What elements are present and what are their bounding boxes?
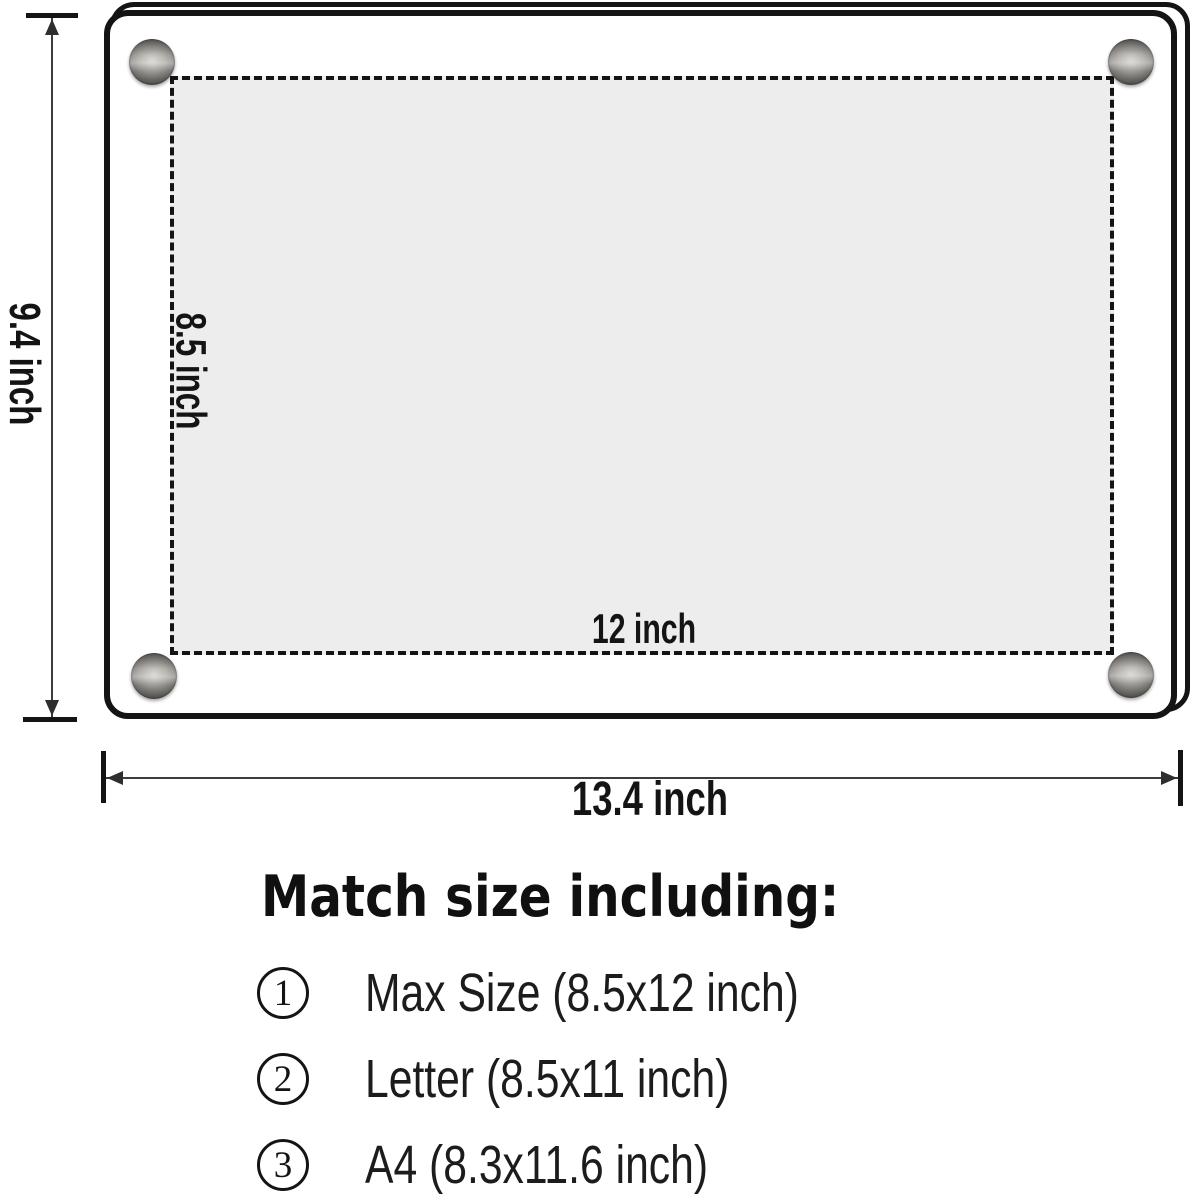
width-dimension-right-tick — [1178, 750, 1183, 806]
list-item-label: A4 (8.3x11.6 inch) — [365, 1138, 708, 1192]
arrow-up-icon — [45, 19, 59, 35]
list-item-letter: 2 Letter (8.5x11 inch) — [257, 1052, 914, 1106]
arrow-left-icon — [107, 771, 123, 785]
circled-number-3: 3 — [257, 1139, 309, 1191]
max-insert-area — [170, 76, 1114, 655]
frame-width-label: 13.4 inch — [572, 776, 728, 824]
height-dimension-top-tick — [26, 13, 78, 18]
screw-icon-bottom-right — [1108, 652, 1154, 698]
insert-height-label: 8.5 inch — [169, 313, 212, 430]
list-item-label: Letter (8.5x11 inch) — [365, 1052, 729, 1106]
product-dimension-diagram: 9.4 inch 13.4 inch 8.5 inch 12 inch Matc… — [0, 0, 1200, 1200]
match-size-heading: Match size including: — [261, 863, 839, 931]
height-dimension-line — [51, 15, 53, 719]
circled-number-2: 2 — [257, 1053, 309, 1105]
list-item-max-size: 1 Max Size (8.5x12 inch) — [257, 966, 914, 1020]
match-size-list: 1 Max Size (8.5x12 inch) 2 Letter (8.5x1… — [257, 966, 914, 1200]
screw-icon-top-left — [129, 39, 175, 85]
list-item-label: Max Size (8.5x12 inch) — [365, 966, 799, 1020]
height-dimension-bottom-tick — [23, 717, 77, 722]
arrow-down-icon — [45, 700, 59, 716]
circled-number-1: 1 — [257, 967, 309, 1019]
list-item-a4: 3 A4 (8.3x11.6 inch) — [257, 1138, 914, 1192]
insert-width-label: 12 inch — [592, 608, 696, 650]
width-dimension-left-tick — [101, 751, 106, 803]
screw-icon-top-right — [1108, 39, 1154, 85]
screw-icon-bottom-left — [131, 653, 177, 699]
arrow-right-icon — [1161, 771, 1177, 785]
frame-height-label: 9.4 inch — [2, 303, 46, 426]
